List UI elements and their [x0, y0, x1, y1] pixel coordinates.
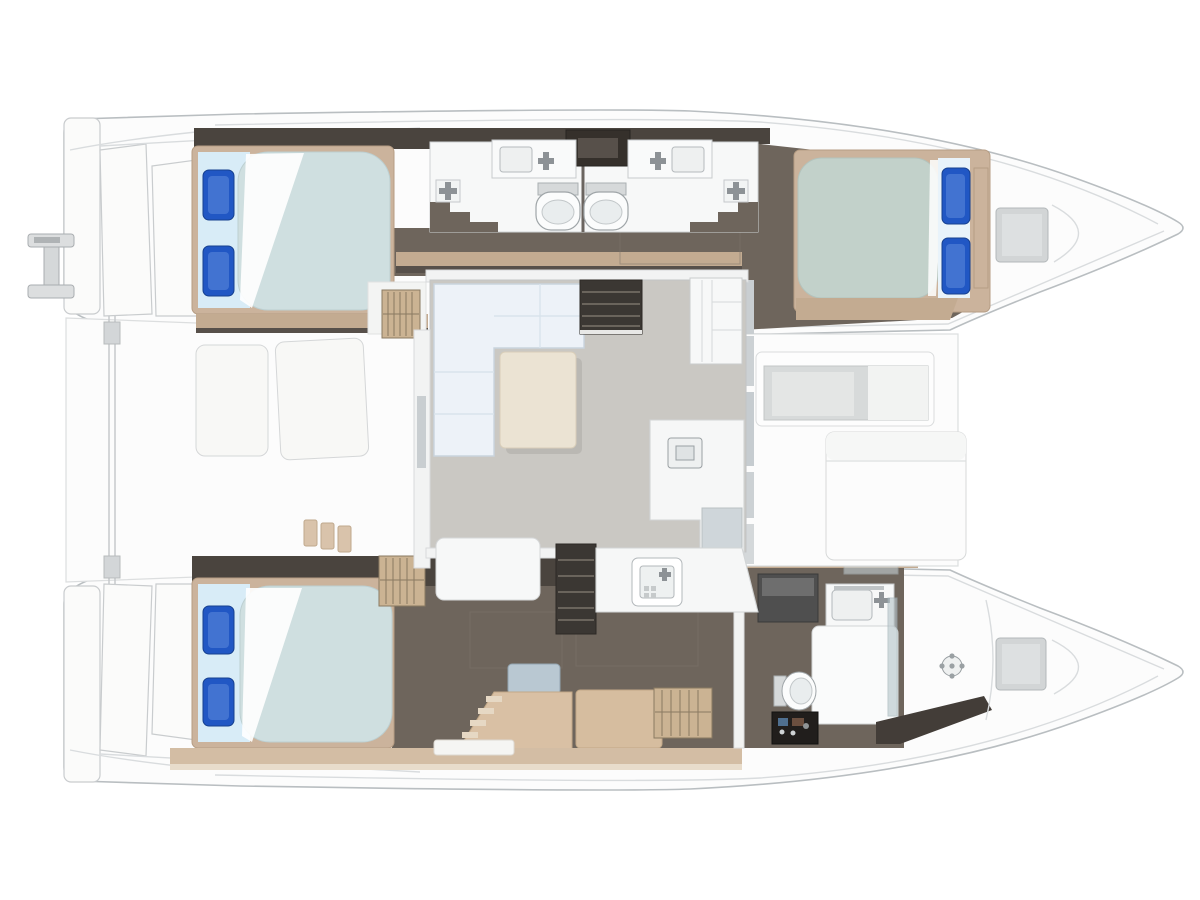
- glass-partition-vertical: [888, 598, 897, 716]
- vanity-right-basin: [672, 147, 704, 172]
- galley: [596, 548, 758, 612]
- black-vanity-box: [772, 712, 818, 744]
- coffee-table: [500, 352, 576, 448]
- bathroom-sink: [826, 584, 894, 626]
- chaise-right: [576, 690, 662, 748]
- beam-block-bottom: [104, 556, 120, 578]
- port-transom-step-1: [100, 144, 152, 316]
- pillow-highlight: [946, 244, 965, 288]
- fridge-cabinet: [690, 278, 742, 364]
- beam-block-top: [104, 322, 120, 344]
- bathroom-toilet: [774, 672, 816, 710]
- salon: [414, 270, 758, 634]
- steps-to-port-hull: [580, 280, 642, 334]
- cockpit-bench-1: [196, 345, 268, 456]
- seating-well: [756, 352, 934, 426]
- pillow-highlight: [208, 684, 229, 720]
- salon-aft-door: [417, 396, 426, 468]
- shower-mixer-left: [436, 180, 460, 202]
- cockpit-step-2: [321, 523, 334, 549]
- pillow-highlight: [208, 252, 229, 290]
- dark-cabinet-inner: [578, 138, 618, 158]
- floor-plan-canvas: [0, 0, 1200, 900]
- stbd-aft-bed: [192, 578, 394, 748]
- cockpit-step-1: [304, 520, 317, 546]
- corridor-louver-locker: [654, 688, 712, 738]
- counter-appliance-inner: [676, 446, 694, 460]
- shower-tray: [812, 626, 898, 724]
- port-bathrooms: [430, 130, 758, 232]
- stool: [508, 664, 560, 694]
- counter-glass-door: [702, 508, 742, 554]
- stbd-walkway-light: [170, 764, 742, 770]
- pillow-highlight: [208, 612, 229, 648]
- pillow-highlight: [208, 176, 229, 214]
- mattress: [798, 158, 938, 298]
- pillow-highlight: [946, 174, 965, 218]
- salon-bench: [436, 538, 540, 600]
- cockpit-bench-2: [275, 338, 369, 460]
- cockpit-step-3: [338, 526, 351, 552]
- appliance: [758, 574, 818, 622]
- deck-hatch-inner: [1002, 214, 1042, 256]
- vanity-left-basin: [500, 147, 532, 172]
- walkway-strip: [796, 298, 958, 320]
- deck-hatch-inner: [1002, 644, 1040, 684]
- catamaran-floor-plan: [0, 0, 1200, 900]
- shower-mixer-right: [724, 180, 748, 202]
- toilet-left: [536, 183, 580, 230]
- glass-partition-top: [844, 566, 898, 574]
- bow-bulkhead: [974, 168, 988, 288]
- sun-pad: [826, 432, 966, 560]
- steps-to-stbd-hull: [556, 544, 596, 634]
- port-forward-bed: [794, 150, 990, 320]
- stbd-transom-step-1: [100, 584, 152, 756]
- toilet-right: [584, 183, 628, 230]
- walkway-panel: [434, 740, 514, 755]
